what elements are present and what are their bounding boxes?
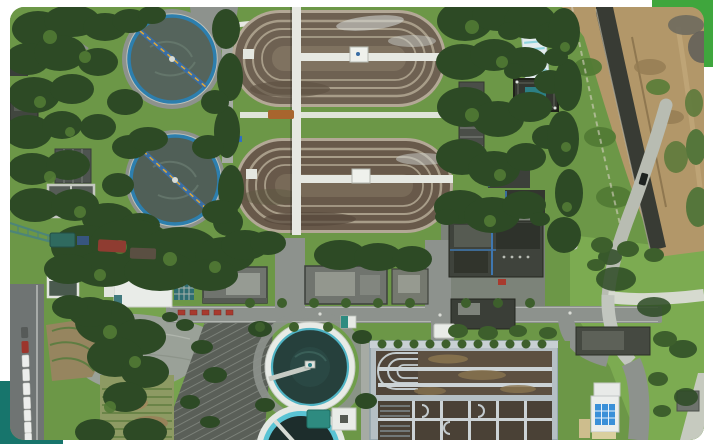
truck-blue [77,236,89,245]
truck-red [98,239,127,252]
aeration-basins [370,341,570,440]
page [0,0,713,444]
aerial-photo-treatment-plant [10,7,704,440]
truck-canopy [50,233,75,247]
oxidation-ditch-2 [235,138,453,233]
aerial-photo-scene [10,7,704,440]
main-road [166,306,662,323]
teal-pavilion [307,410,330,428]
